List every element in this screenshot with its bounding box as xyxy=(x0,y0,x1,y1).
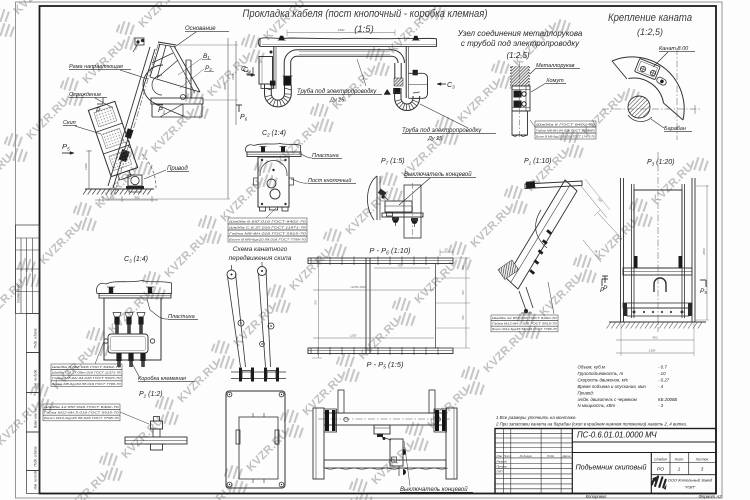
svg-text:Лист: Лист xyxy=(503,454,512,458)
svg-text:(1:2,5): (1:2,5) xyxy=(637,27,663,37)
svg-text:Копировал: Копировал xyxy=(586,494,607,499)
svg-text:≈1250-1600: ≈1250-1600 xyxy=(350,285,366,289)
svg-text:Болт В М6-6gх25.58.016 ГОСТ 17: Болт В М6-6gх25.58.016 ГОСТ 17475-70 xyxy=(536,134,595,138)
svg-text:760: 760 xyxy=(398,264,403,268)
svg-text:Выключатель концевой: Выключатель концевой xyxy=(400,486,468,493)
svg-text:- 0.27: - 0.27 xyxy=(658,377,670,382)
svg-text:952: 952 xyxy=(652,336,657,340)
svg-text:Изм: Изм xyxy=(497,454,502,458)
svg-text:- 0.7: - 0.7 xyxy=(658,365,667,370)
svg-text:- 3: - 3 xyxy=(658,403,664,408)
svg-text:2 При запасовки каната на бара: 2 При запасовки каната на барабан (скип … xyxy=(495,422,687,427)
svg-text:Прокладка кабеля (пост кнопочн: Прокладка кабеля (пост кнопочный - короб… xyxy=(243,8,488,20)
svg-text:С2 (1:4): С2 (1:4) xyxy=(262,130,286,137)
svg-text:500: 500 xyxy=(110,196,115,200)
svg-text:Гайка М8-6Н.04.016 ГОСТ 5915-7: Гайка М8-6Н.04.016 ГОСТ 5915-70 xyxy=(52,376,121,380)
svg-text:передвижения скипа: передвижения скипа xyxy=(229,254,292,262)
svg-text:ООО Котельный Завод: ООО Котельный Завод xyxy=(668,478,713,483)
svg-text:Скорость движения, м/с: Скорость движения, м/с xyxy=(578,377,629,382)
svg-text:Ду 25: Ду 25 xyxy=(427,136,443,142)
svg-text:Стадия: Стадия xyxy=(654,458,667,462)
svg-text:Болт М8-6gх63.58.016 ГОСТ 7798: Болт М8-6gх63.58.016 ГОСТ 7798-70 xyxy=(52,382,121,386)
svg-text:Шайба 6 ГОСТ 6402-70: Шайба 6 ГОСТ 6402-70 xyxy=(536,122,595,126)
svg-text:1100: 1100 xyxy=(84,163,88,170)
svg-text:эл/дв. двигатель с червяком: эл/дв. двигатель с червяком xyxy=(578,397,637,402)
svg-text:Крепление каната: Крепление каната xyxy=(608,12,692,24)
svg-text:1500: 1500 xyxy=(231,73,235,80)
svg-text:Р1 (1:10): Р1 (1:10) xyxy=(524,158,551,165)
svg-text:760: 760 xyxy=(461,315,465,320)
svg-text:Объем, куб.м: Объем, куб.м xyxy=(578,365,605,370)
svg-text:Выключатель концевой: Выключатель концевой xyxy=(404,171,472,178)
svg-text:"РЭП": "РЭП" xyxy=(684,485,696,490)
svg-text:Инв. № подл.: Инв. № подл. xyxy=(34,470,38,490)
svg-text:- 4: - 4 xyxy=(658,384,664,389)
svg-text:760: 760 xyxy=(461,265,465,270)
svg-text:760: 760 xyxy=(461,290,465,295)
svg-text:Подьемник скиповый: Подьемник скиповый xyxy=(575,462,646,471)
svg-text:№ докум.: № докум. xyxy=(520,454,533,458)
svg-text:Подп. и дата: Подп. и дата xyxy=(34,328,38,348)
svg-text:(1:2,5): (1:2,5) xyxy=(506,51,529,60)
svg-text:- 10: - 10 xyxy=(658,371,666,376)
svg-text:Шайба 12.65Г.016 ГОСТ 6402-70: Шайба 12.65Г.016 ГОСТ 6402-70 xyxy=(492,316,557,320)
svg-text:Шайба С.8.37.08кп.016 ГОСТ 113: Шайба С.8.37.08кп.016 ГОСТ 11371-78 xyxy=(52,371,121,375)
svg-text:Схема канатного: Схема канатного xyxy=(233,246,288,253)
svg-text:Листов: Листов xyxy=(695,458,709,462)
svg-text:Р7 (1:5): Р7 (1:5) xyxy=(381,158,405,165)
svg-text:Лист: Лист xyxy=(674,458,684,462)
svg-text:3500: 3500 xyxy=(702,248,706,255)
svg-text:Инв. № дубл.: Инв. № дубл. xyxy=(34,369,38,389)
svg-text:3000: 3000 xyxy=(223,83,227,90)
svg-text:Формат А2: Формат А2 xyxy=(699,494,723,499)
svg-text:Провер.: Провер. xyxy=(497,465,508,469)
svg-text:3: 3 xyxy=(701,466,704,472)
svg-text:РО: РО xyxy=(657,466,664,472)
svg-text:900: 900 xyxy=(135,196,140,200)
svg-text:ГИП: ГИП xyxy=(497,470,504,474)
svg-text:Шайба 8.65Г.016 ГОСТ 6402-70: Шайба 8.65Г.016 ГОСТ 6402-70 xyxy=(52,365,121,369)
svg-text:Гайка М12-6Н.5.016 ГОСТ 5915-7: Гайка М12-6Н.5.016 ГОСТ 5915-70 xyxy=(492,322,557,326)
svg-text:700: 700 xyxy=(314,300,318,305)
svg-text:(1:5): (1:5) xyxy=(354,24,374,35)
svg-text:Дата: Дата xyxy=(562,454,571,458)
svg-text:Пост кнопочный: Пост кнопочный xyxy=(308,177,351,184)
svg-text:ПС-0.6.01.01.0000 МЧ: ПС-0.6.01.01.0000 МЧ xyxy=(577,430,657,439)
svg-text:1800: 1800 xyxy=(338,28,345,32)
svg-text:Время подъема и опускания, мин: Время подъема и опускания, мин xyxy=(578,384,647,389)
svg-text:Болт М12-6gх45.58.016 ГОСТ 779: Болт М12-6gх45.58.016 ГОСТ 7798-70 xyxy=(44,416,119,420)
svg-text:КБ 2008Б: КБ 2008Б xyxy=(658,397,677,402)
svg-text:Р - Р5 (1:5): Р - Р5 (1:5) xyxy=(367,360,404,370)
svg-text:Р: Р xyxy=(96,107,101,114)
svg-text:Болт М12-6gх45.58.016 ГОСТ 779: Болт М12-6gх45.58.016 ГОСТ 7798-70 xyxy=(492,327,557,331)
svg-text:Подп. и дата: Подп. и дата xyxy=(34,446,38,466)
svg-text:Гайка М6-6Н.016 ГОСТ 5915-70: Гайка М6-6Н.016 ГОСТ 5915-70 xyxy=(229,231,306,235)
svg-text:Шайба С.6.37.016 ГОСТ 11971-78: Шайба С.6.37.016 ГОСТ 11971-78 xyxy=(229,225,306,229)
svg-text:Болт В М6-6gх20.58.016 ГОСТ 77: Болт В М6-6gх20.58.016 ГОСТ 7798-70 xyxy=(229,237,306,241)
svg-text:С3 (1:4): С3 (1:4) xyxy=(124,256,148,263)
svg-text:с трубой под электропроводку: с трубой под электропроводку xyxy=(461,39,580,48)
svg-text:Разраб.: Разраб. xyxy=(497,459,508,463)
svg-text:Узел соединения металлорукова: Узел соединения металлорукова xyxy=(457,29,583,38)
svg-text:1300: 1300 xyxy=(649,349,656,353)
svg-text:Подп.: Подп. xyxy=(547,454,555,458)
svg-text:Гайка М12-6Н.5.016 ГОСТ 5915-7: Гайка М12-6Н.5.016 ГОСТ 5915-70 xyxy=(44,411,119,415)
svg-text:Шайба 12.65Г.016 ГОСТ 6402-70: Шайба 12.65Г.016 ГОСТ 6402-70 xyxy=(44,405,119,409)
svg-text:1250: 1250 xyxy=(350,334,357,338)
svg-text:Грузоподъемность, т: Грузоподъемность, т xyxy=(578,371,624,376)
svg-text:50: 50 xyxy=(444,248,448,252)
svg-text:Р - Р6 (1:10): Р - Р6 (1:10) xyxy=(369,246,411,256)
svg-text:N мощность, кВт: N мощность, кВт xyxy=(578,403,616,408)
svg-text:Согласовано: Согласовано xyxy=(17,283,21,303)
svg-text:Гайка М6-6Н.04.016 ГОСТ 5915-7: Гайка М6-6Н.04.016 ГОСТ 5915-70 xyxy=(536,128,595,132)
svg-text:Р: Р xyxy=(600,287,605,294)
svg-text:Привод:: Привод: xyxy=(578,390,595,395)
svg-text:Взам. инв. №: Взам. инв. № xyxy=(34,408,38,428)
svg-text:1 Все размеры уточнить на монт: 1 Все размеры уточнить на монтаже. xyxy=(496,415,577,420)
svg-text:1: 1 xyxy=(678,466,681,472)
svg-text:Р3 (1:20): Р3 (1:20) xyxy=(647,159,674,166)
svg-text:Р2 (1:2): Р2 (1:2) xyxy=(139,391,163,398)
svg-text:Ду 25: Ду 25 xyxy=(329,98,345,104)
svg-text:Шайба 6.65Г.016 ГОСТ 6402-70: Шайба 6.65Г.016 ГОСТ 6402-70 xyxy=(229,219,306,223)
